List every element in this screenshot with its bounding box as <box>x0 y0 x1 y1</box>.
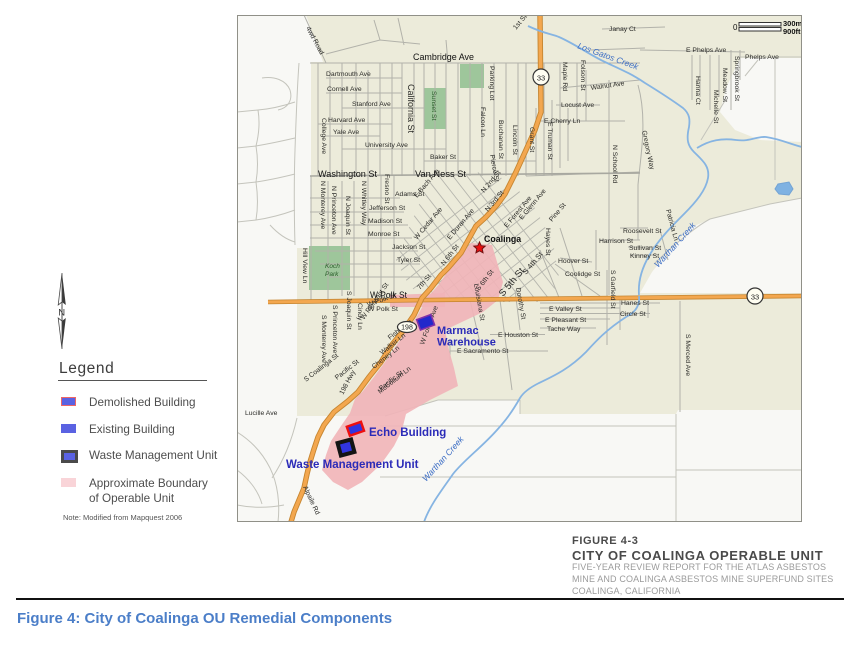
svg-text:W Polk St: W Polk St <box>370 290 408 300</box>
svg-text:Jackson St: Jackson St <box>392 244 425 251</box>
svg-text:S Merced Ave: S Merced Ave <box>684 334 691 376</box>
svg-text:Harvard Ave: Harvard Ave <box>328 117 365 124</box>
svg-text:Circle St: Circle St <box>620 311 646 318</box>
svg-text:S Joaquin St: S Joaquin St <box>345 291 352 330</box>
svg-text:Hanna Ct: Hanna Ct <box>694 76 701 105</box>
svg-text:Folsom St: Folsom St <box>579 60 586 91</box>
svg-text:900ft: 900ft <box>783 27 801 36</box>
svg-text:Park: Park <box>325 271 339 278</box>
svg-text:Maple Rd: Maple Rd <box>561 62 568 91</box>
svg-text:N Princeton Ave: N Princeton Ave <box>330 186 337 235</box>
svg-text:Monroe St: Monroe St <box>368 231 399 238</box>
svg-text:California St: California St <box>406 84 416 134</box>
svg-text:Jefferson St: Jefferson St <box>369 205 405 212</box>
svg-text:Sunset St: Sunset St <box>430 91 437 121</box>
svg-text:Tache Way: Tache Way <box>547 326 581 333</box>
svg-text:Coalinga: Coalinga <box>484 234 521 244</box>
svg-text:Echo Building: Echo Building <box>369 427 446 439</box>
svg-text:Parking Lot: Parking Lot <box>488 66 495 100</box>
svg-text:Cambridge Ave: Cambridge Ave <box>413 52 474 62</box>
svg-text:E Houston St: E Houston St <box>498 332 538 339</box>
svg-text:33: 33 <box>537 74 545 83</box>
svg-text:Marmac: Marmac <box>437 325 479 337</box>
svg-text:Van Ness St: Van Ness St <box>415 169 467 179</box>
svg-text:Michelle St: Michelle St <box>712 90 719 123</box>
svg-text:Tyler St: Tyler St <box>397 257 420 264</box>
svg-text:E Phelps Ave: E Phelps Ave <box>686 47 727 54</box>
svg-text:N Whitley Way: N Whitley Way <box>360 181 367 226</box>
svg-text:0: 0 <box>733 23 738 32</box>
svg-text:Washington St: Washington St <box>318 169 378 179</box>
svg-text:Grant St: Grant St <box>528 127 535 152</box>
svg-text:Hayes St: Hayes St <box>544 228 551 256</box>
svg-text:N Joaquin St: N Joaquin St <box>344 196 351 235</box>
svg-text:198: 198 <box>401 325 413 332</box>
svg-text:Yale Ave: Yale Ave <box>333 129 359 136</box>
svg-text:Cornell Ave: Cornell Ave <box>327 86 362 93</box>
svg-text:Falcon Ln: Falcon Ln <box>479 107 486 137</box>
svg-text:Hoover St: Hoover St <box>558 258 588 265</box>
svg-text:Dartmouth Ave: Dartmouth Ave <box>326 71 371 78</box>
svg-text:Meadow St: Meadow St <box>721 68 728 102</box>
svg-text:Phelps Ave: Phelps Ave <box>745 54 779 61</box>
svg-text:Lincoln St: Lincoln St <box>511 125 518 155</box>
svg-text:Hanes St: Hanes St <box>621 300 649 307</box>
svg-text:E Pleasant St: E Pleasant St <box>545 317 586 324</box>
svg-text:S Monterey Ave: S Monterey Ave <box>320 315 327 363</box>
svg-text:Hill View Ln: Hill View Ln <box>301 248 308 284</box>
svg-text:E Truman St: E Truman St <box>546 122 553 160</box>
svg-text:College Ave: College Ave <box>320 118 327 154</box>
svg-text:E Valley St: E Valley St <box>549 306 582 313</box>
svg-text:Harrison St: Harrison St <box>599 238 633 245</box>
svg-text:Locust Ave: Locust Ave <box>561 102 594 109</box>
svg-text:Koch: Koch <box>325 263 340 270</box>
svg-text:Janay Ct: Janay Ct <box>609 26 636 33</box>
svg-text:Lucille Ave: Lucille Ave <box>245 410 278 417</box>
svg-text:S Garfield St: S Garfield St <box>609 270 616 309</box>
svg-text:Coolidge St: Coolidge St <box>565 271 600 278</box>
svg-text:Stanford Ave: Stanford Ave <box>352 101 391 108</box>
svg-text:Waste Management Unit: Waste Management Unit <box>286 459 419 471</box>
svg-text:Springbrook St: Springbrook St <box>733 56 740 101</box>
svg-text:N Monterey Ave: N Monterey Ave <box>319 181 326 229</box>
svg-text:Fresno St: Fresno St <box>383 174 390 204</box>
svg-text:E Sacramento St: E Sacramento St <box>457 348 508 355</box>
svg-text:Madison St: Madison St <box>368 218 402 225</box>
svg-text:33: 33 <box>751 293 759 302</box>
svg-text:Warehouse: Warehouse <box>437 337 496 349</box>
svg-text:Sullivan St: Sullivan St <box>629 245 661 252</box>
svg-text:Baker St: Baker St <box>430 154 456 161</box>
svg-text:Buchanan St: Buchanan St <box>497 120 504 159</box>
svg-text:Roosevelt St: Roosevelt St <box>623 228 662 235</box>
svg-text:N School Rd: N School Rd <box>611 145 618 183</box>
svg-text:S Princeton Ave: S Princeton Ave <box>331 305 338 353</box>
svg-text:University Ave: University Ave <box>365 142 408 149</box>
